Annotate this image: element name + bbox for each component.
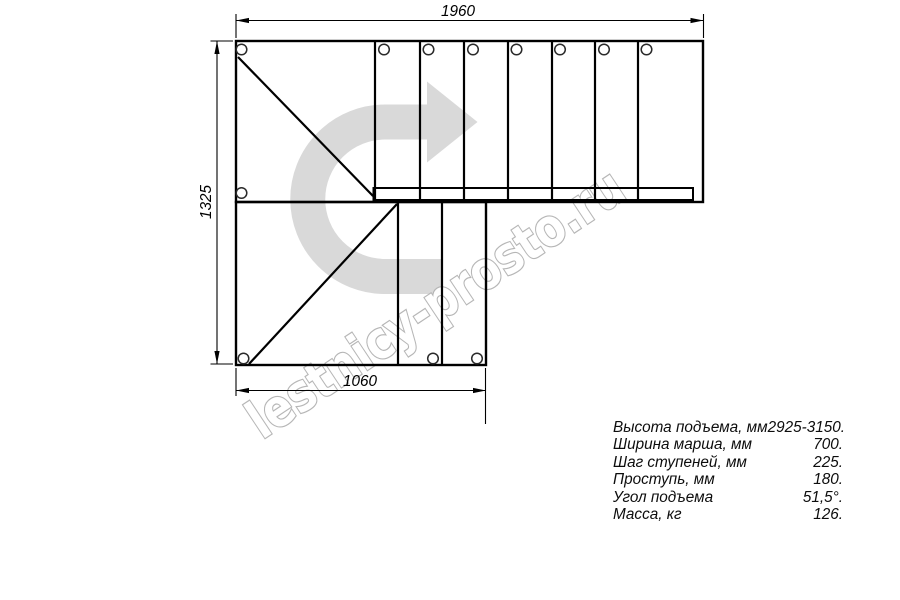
spec-label: Ширина марша, мм [613, 436, 752, 453]
dimension-left: 1325 [198, 41, 233, 364]
spec-row-mass: Масса, кг 126. [613, 506, 843, 523]
staircase-drawing-page: lestnicy-prosto.ru [0, 0, 900, 600]
direction-arrow-head-icon [427, 82, 478, 163]
spec-value: 126. [813, 506, 843, 523]
spec-row-height: Высота подъема, мм 2925-3150. [613, 419, 843, 436]
spec-value: 51,5°. [803, 489, 843, 506]
dimension-top-label: 1960 [441, 3, 475, 20]
spec-table: Высота подъема, мм 2925-3150. Ширина мар… [613, 419, 843, 523]
spec-row-step-pitch: Шаг ступеней, мм 225. [613, 454, 843, 471]
spec-label: Шаг ступеней, мм [613, 454, 747, 471]
spec-row-angle: Угол подъема 51,5°. [613, 489, 843, 506]
dimension-bottom-label: 1060 [343, 373, 377, 390]
upper-flight-support-bar [374, 188, 694, 200]
spec-label: Проступь, мм [613, 471, 715, 488]
direction-arrow [308, 82, 478, 277]
spec-label: Масса, кг [613, 506, 682, 523]
dimension-left-label: 1325 [198, 185, 215, 219]
dimension-top: 1960 [236, 3, 704, 38]
spec-value: 700. [813, 436, 843, 453]
spec-value: 180. [813, 471, 843, 488]
spec-row-march-width: Ширина марша, мм 700. [613, 436, 843, 453]
spec-value: 2925-3150. [768, 419, 845, 436]
spec-label: Высота подъема, мм [613, 419, 768, 436]
spec-value: 225. [813, 454, 843, 471]
spec-label: Угол подъема [613, 489, 713, 506]
spec-row-tread: Проступь, мм 180. [613, 471, 843, 488]
